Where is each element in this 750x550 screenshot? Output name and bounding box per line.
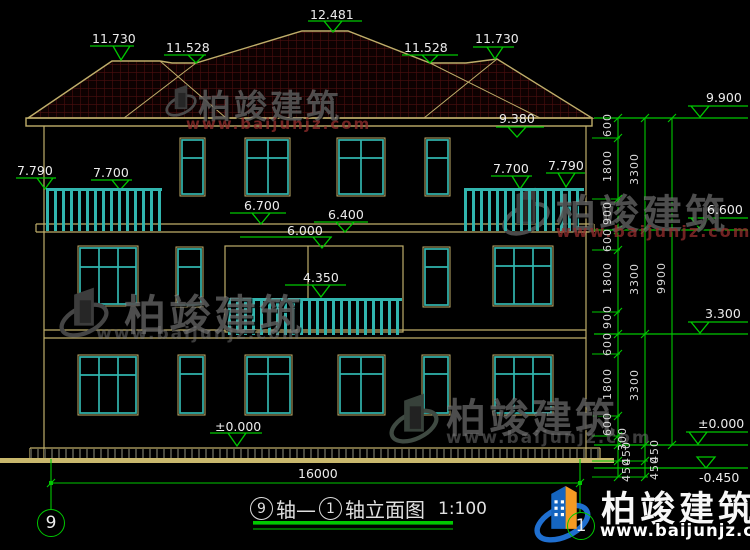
level-66: 6.600 xyxy=(707,202,743,217)
watermark-url: www.baijunjz.com xyxy=(186,115,371,133)
level-canopy-right: 6.400 xyxy=(328,207,364,222)
axis-bubble-1: 1 xyxy=(567,512,595,540)
dim-900: 900 xyxy=(601,305,614,329)
level-ground-right: ±0.000 xyxy=(698,416,744,431)
dim-450: 450 xyxy=(648,456,661,480)
level-33: 3.300 xyxy=(705,306,741,321)
title-axis-start: 9 xyxy=(250,497,273,520)
balcony-railing-left xyxy=(46,188,162,231)
dim-600: 600 xyxy=(601,332,614,356)
level-flat-left: 11.528 xyxy=(166,40,210,55)
elevation-drawing: 柏竣建筑 www.baijunjz.com 柏竣建筑 www.baijunjz.… xyxy=(0,0,750,550)
level-eave: 9.380 xyxy=(499,111,535,126)
watermark-url: www.baijunjz.com xyxy=(96,324,302,344)
title-rest: 轴立面图 xyxy=(345,494,425,523)
dim-9900: 9900 xyxy=(655,262,668,294)
level-ridge-right: 11.730 xyxy=(475,31,519,46)
level-floor3: 6.000 xyxy=(287,223,323,238)
level-balcony2: 4.350 xyxy=(303,270,339,285)
level-balcony3-left-outer: 7.790 xyxy=(17,163,53,178)
level-balcony3-right-outer: 7.790 xyxy=(548,158,584,173)
watermark-logo-icon xyxy=(384,388,444,450)
level-ground-left: ±0.000 xyxy=(215,419,261,434)
level-canopy-left: 6.700 xyxy=(244,198,280,213)
axis-bubble-9: 9 xyxy=(37,509,65,537)
level-parapet: 9.900 xyxy=(706,90,742,105)
dim-1800: 1800 xyxy=(601,150,614,182)
level-balcony3-left-inner: 7.700 xyxy=(93,165,129,180)
dim-1800: 1800 xyxy=(601,368,614,400)
brand-logo-icon xyxy=(528,478,600,548)
watermark-url: www.baijunjz.com xyxy=(556,222,750,241)
level-balcony3-right-inner: 7.700 xyxy=(493,161,529,176)
dim-3300: 3300 xyxy=(628,369,641,401)
title-scale: 1:100 xyxy=(438,499,487,519)
axis-number-right: 1 xyxy=(576,516,587,536)
level-flat-right: 11.528 xyxy=(404,40,448,55)
title-axis-end: 1 xyxy=(319,497,342,520)
dim-600: 600 xyxy=(601,113,614,137)
dim-900: 900 xyxy=(601,201,614,225)
dim-1800: 1800 xyxy=(601,262,614,294)
level-ridge-left: 11.730 xyxy=(92,31,136,46)
dim-3300: 3300 xyxy=(628,263,641,295)
dim-16000: 16000 xyxy=(298,466,338,481)
dim-450: 450 xyxy=(620,458,633,482)
dim-3300: 3300 xyxy=(628,153,641,185)
plinth-hatch xyxy=(30,449,600,458)
title-mid: 轴— xyxy=(276,494,316,523)
axis-number-left: 9 xyxy=(46,513,57,533)
drawing-title: 9 轴— 1 轴立面图 1:100 xyxy=(250,494,487,523)
dim-600: 600 xyxy=(601,412,614,436)
brand-logo-url: www.baijunjz.com xyxy=(600,521,750,540)
dim-600: 600 xyxy=(601,228,614,252)
level-peak: 12.481 xyxy=(310,7,354,22)
